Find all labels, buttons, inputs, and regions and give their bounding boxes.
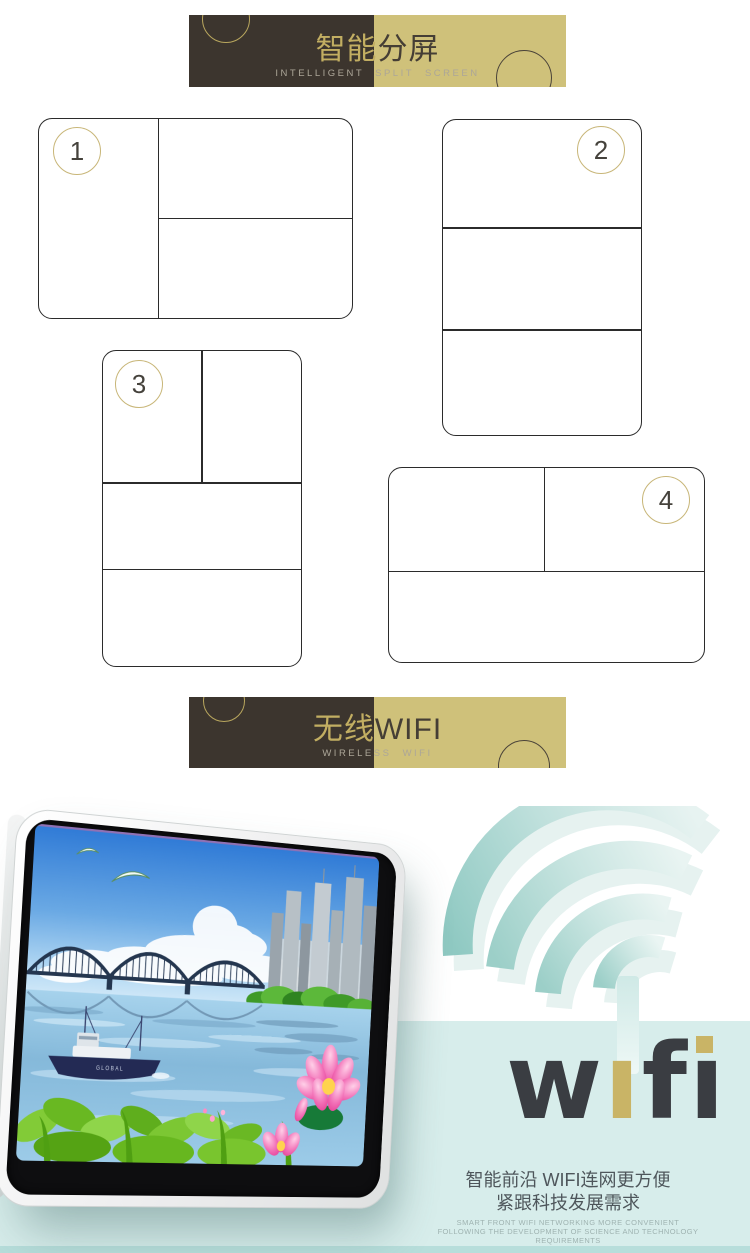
caption-line-4: FOLLOWING THE DEVELOPMENT OF SCIENCE AND… — [412, 1227, 724, 1245]
banner-subtitle: WIRELESS WIFI — [189, 748, 566, 759]
caption-line-1: 智能前沿 WIFI连网更方便 — [412, 1168, 724, 1192]
caption-block: 智能前沿 WIFI连网更方便 紧跟科技发展需求 SMART FRONT WIFI… — [412, 1168, 724, 1245]
layout-number-badge: 1 — [53, 127, 101, 175]
banner-wireless-wifi: 无线WIFI WIRELESS WIFI — [189, 697, 566, 768]
split-layout-diagram-2: 2 — [442, 119, 642, 436]
divider-horizontal — [389, 571, 704, 573]
wordmark-letter-i-gold: ı — [604, 1021, 642, 1143]
layout-number-badge: 4 — [642, 476, 690, 524]
divider-vertical — [201, 351, 203, 482]
wifi-i-gold-dot-icon — [696, 1036, 713, 1053]
wordmark-letter-w: w — [506, 1021, 604, 1143]
banner-title-left: 无线 — [313, 713, 375, 746]
divider-horizontal — [103, 569, 301, 571]
banner-title: 智能分屏 — [189, 35, 566, 65]
wordmark-letter-f: f — [642, 1021, 689, 1143]
banner-title-right: 分屏 — [378, 33, 440, 66]
split-layout-diagram-3: 3 — [102, 350, 302, 667]
split-layout-diagram-4: 4 — [388, 467, 705, 663]
layout-number-badge: 2 — [577, 126, 625, 174]
banner-title-right: WIFI — [375, 713, 442, 746]
divider-horizontal — [103, 482, 301, 484]
monitor-screen: GLOBAL — [16, 823, 380, 1166]
banner-title-left: 智能 — [316, 33, 378, 66]
divider-horizontal — [443, 329, 641, 331]
display-product: GLOBAL — [0, 807, 407, 1209]
ship-label: GLOBAL — [96, 1066, 124, 1073]
banner-subtitle: INTELLIGENT SPLIT SCREEN — [189, 68, 566, 79]
layout-number-badge: 3 — [115, 360, 163, 408]
wifi-wordmark: wıfı — [506, 1030, 727, 1134]
banner-split-screen: 智能分屏 INTELLIGENT SPLIT SCREEN — [189, 15, 566, 87]
bottom-strip — [0, 1246, 750, 1253]
divider-horizontal — [443, 227, 641, 229]
caption-line-3: SMART FRONT WIFI NETWORKING MORE CONVENI… — [412, 1218, 724, 1227]
split-layout-diagram-1: 1 — [38, 118, 353, 319]
caption-line-2: 紧跟科技发展需求 — [412, 1192, 724, 1215]
divider-horizontal — [158, 218, 352, 220]
landscape-image: GLOBAL — [16, 823, 380, 1166]
promo-page: 智能分屏 INTELLIGENT SPLIT SCREEN 1 2 3 4 无线… — [0, 0, 750, 1253]
banner-title: 无线WIFI — [189, 715, 566, 745]
divider-vertical — [544, 468, 546, 571]
